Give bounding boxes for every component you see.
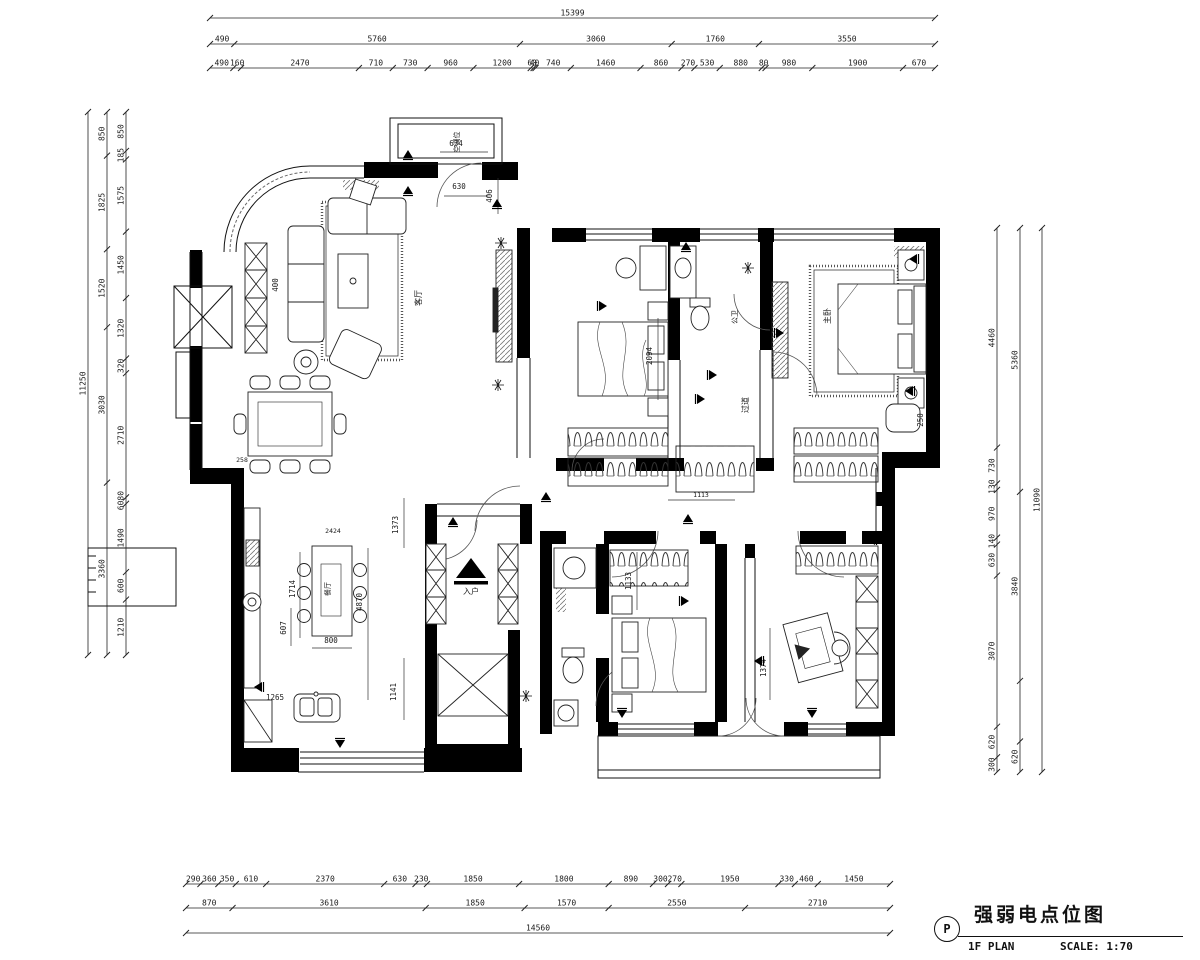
master-bedroom [772,250,926,482]
room-label: 客厅 [413,290,423,306]
dim-label: 600 [117,578,126,593]
dim-label: 1850 [463,875,482,884]
socket-symbol [335,739,345,749]
study [783,546,878,708]
inline-dim: 1373 [391,516,400,534]
dim-label: 970 [988,506,997,521]
room-label: 餐厅 [323,582,332,596]
inline-dim: 1133 [624,572,633,590]
dim-chain-right-minor: 44607301309701406303070620300 [988,225,1001,775]
dim-label: 1460 [596,59,615,68]
dim-chain-bottom-major: 87036101850157025502710 [183,899,893,912]
room-label: 过道 [740,397,750,413]
inline-dim: 607 [279,621,288,635]
inline-dim: 400 [271,278,280,292]
dim-chain-left-minor: 8501851575145013203202710608014906001210 [117,109,130,658]
dim-label: 6080 [117,491,126,510]
socket-symbol [696,394,706,404]
side-table [294,350,318,374]
dim-chain-right-total: 11090 [1033,225,1046,775]
dim-label: 960 [443,59,458,68]
socket-symbol [680,596,690,606]
dim-label: 490 [215,35,230,44]
dim-label: 1570 [557,899,576,908]
dim-label: 4460 [988,328,997,347]
shoe-cabinet [245,243,267,353]
inline-dim: 1141 [389,683,398,701]
dim-chain-bottom-minor: 2903603506102370630230185018008903002701… [183,875,893,888]
inline-dim: 1714 [288,579,297,598]
dim-label: 1900 [848,59,867,68]
dim-label: 980 [782,59,797,68]
socket-symbol [598,301,608,311]
dim-label: 11090 [1033,488,1042,512]
dim-label: 740 [546,59,561,68]
detail-symbol-circle: P [934,916,960,942]
dim-label: 11250 [79,371,88,395]
dim-label: 14560 [526,924,550,933]
dim-chain-top-major: 4905760306017603550 [207,35,938,48]
dim-label: 1760 [706,35,725,44]
socket-symbol [403,186,413,196]
dim-label: 3360 [98,559,107,578]
dim-label: 350 [220,875,235,884]
inline-dim: 800 [324,636,338,645]
dim-label: 870 [202,899,217,908]
inline-dim: 4870 [355,592,364,611]
inline-dim: 250 [916,413,925,427]
dim-label: 300 [988,757,997,772]
inline-dim: 2094 [645,346,654,365]
dim-label: 850 [98,126,107,141]
dim-label: 1520 [98,278,107,297]
elevator-shaft [438,654,508,716]
dim-chain-top-total: 15399 [207,9,938,22]
inline-dim: 2424 [325,527,341,535]
dim-label: 3060 [586,35,605,44]
dim-label: 1320 [117,318,126,337]
dim-label: 610 [244,875,259,884]
socket-symbol [448,517,458,527]
dim-label: 860 [654,59,669,68]
tv-cabinet [493,250,512,362]
light-symbol [520,690,532,702]
coffee-table [338,254,368,308]
dim-label: 1490 [117,528,126,547]
dim-label: 3030 [98,395,107,414]
floor-plan-svg: 1539949057603060176035504901602470710730… [0,0,1200,960]
dim-label: 710 [369,59,384,68]
inline-dim: 258 [236,456,248,464]
dim-label: 40 [530,59,540,68]
light-symbol [742,262,754,274]
socket-symbol [541,492,551,502]
floor-plan-page: 1539949057603060176035504901602470710730… [0,0,1200,960]
dim-label: 730 [403,59,418,68]
dim-label: 360 [202,875,217,884]
dim-label: 850 [117,124,126,139]
dim-label: 2370 [316,875,335,884]
dim-label: 320 [117,358,126,373]
dim-chain-top-minor: 4901602470710730960120060407401460860270… [207,59,938,72]
inline-dim: 406 [485,189,494,203]
dim-label: 1450 [117,255,126,274]
entry-arrow [454,558,488,585]
dim-label: 460 [799,875,814,884]
dim-label: 880 [734,59,749,68]
hall-closet [676,446,754,492]
inline-dim: 1265 [266,693,284,702]
dim-label: 2710 [808,899,827,908]
detail-symbol: P [943,922,950,936]
kitchen-counter [243,508,272,742]
inline-dim: 1113 [693,491,709,499]
island-table [298,546,367,636]
dim-label: 1950 [720,875,739,884]
bath2 [554,548,596,726]
dim-label: 300 [653,875,668,884]
title-rule [958,936,1183,937]
dim-label: 5760 [367,35,386,44]
dim-label: 730 [988,458,997,473]
scale-label: SCALE: 1:70 [1060,940,1133,953]
plan-label: 1F PLAN [968,940,1014,953]
dim-label: 270 [667,875,682,884]
dim-label: 1450 [844,875,863,884]
dim-label: 330 [779,875,794,884]
light-symbol [495,237,507,249]
dim-label: 1850 [466,899,485,908]
light-symbol [492,379,504,391]
dim-label: 3550 [837,35,856,44]
dim-label: 2710 [117,425,126,444]
dim-label: 1825 [98,193,107,212]
socket-symbol [683,514,693,524]
dim-label: 3840 [1011,577,1020,596]
socket-symbol [807,709,817,719]
dim-label: 1210 [117,617,126,636]
dim-label: 620 [1011,749,1020,764]
room-label: 入户 [463,586,479,596]
dim-label: 3610 [319,899,338,908]
armchair [327,328,383,381]
dim-label: 490 [214,59,229,68]
dim-label: 670 [912,59,927,68]
dim-label: 1575 [117,186,126,205]
socket-symbol [708,370,718,380]
room-label: 主卧 [822,308,832,324]
dim-label: 530 [700,59,715,68]
dim-label: 5360 [1011,350,1020,369]
dim-chain-left-total: 11250 [79,109,92,658]
dim-label: 185 [117,148,126,163]
dim-chain-bottom-total: 14560 [183,924,893,937]
dim-label: 230 [414,875,429,884]
room-label: 公卫 [731,310,739,324]
dim-label: 1800 [554,875,573,884]
kitchen-sink [294,692,340,722]
dim-label: 630 [988,553,997,568]
room-label: 空调位 [452,132,461,153]
dim-label: 890 [624,875,639,884]
title-block: P 强弱电点位图 1F PLAN SCALE: 1:70 [930,898,1190,954]
dim-label: 15399 [560,9,584,18]
dim-label: 620 [988,735,997,750]
dim-label: 2550 [667,899,686,908]
dim-label: 270 [681,59,696,68]
inline-dim: 630 [452,182,466,191]
dim-label: 3070 [988,641,997,660]
dim-chain-left-major: 8501825152030303360 [98,109,111,658]
dim-label: 1200 [492,59,511,68]
dim-label: 630 [393,875,408,884]
dim-chain-right-major: 53603840620 [1011,225,1024,775]
dining-table [234,376,346,473]
dim-label: 2470 [290,59,309,68]
furniture-layer [234,179,926,742]
dim-label: 290 [186,875,201,884]
drawing-title: 强弱电点位图 [974,900,1106,927]
